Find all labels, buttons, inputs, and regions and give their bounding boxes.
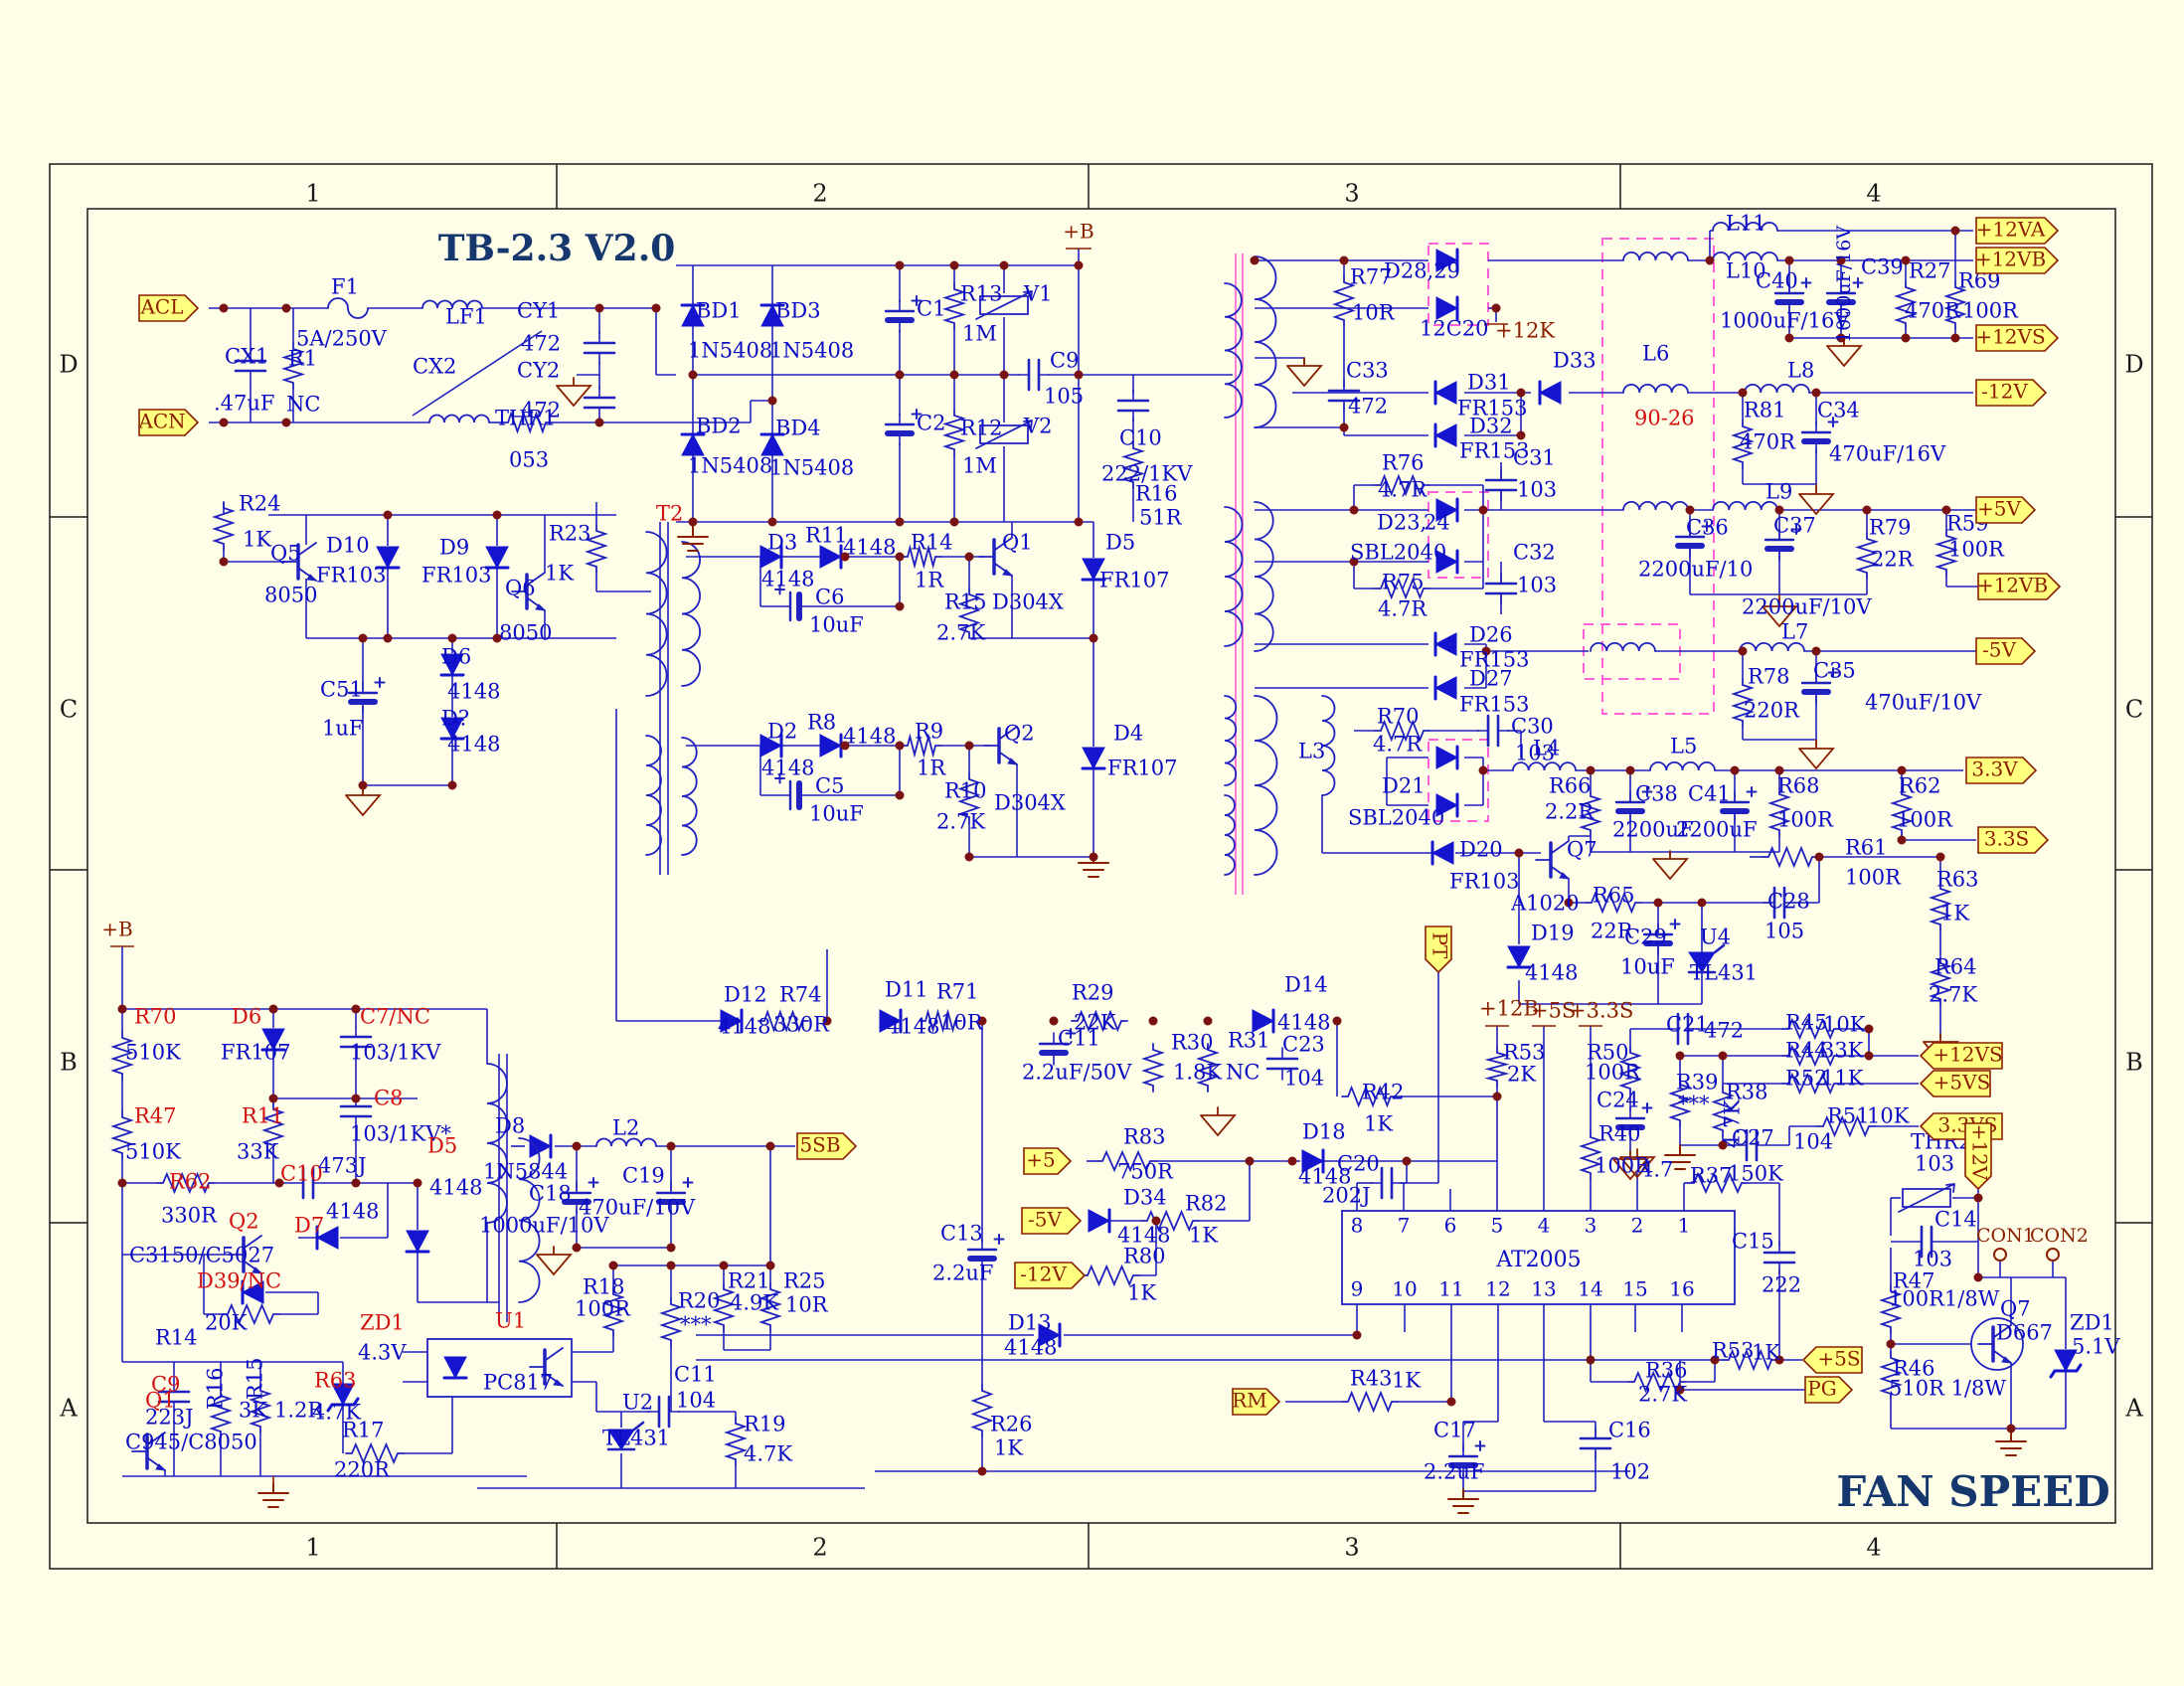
label-R71: R71	[936, 980, 979, 1004]
label-CY2: CY2	[517, 359, 560, 383]
label-R70: R70	[1377, 705, 1420, 729]
grid-col-2: 2	[812, 1534, 827, 1562]
label-+B: +B	[1063, 220, 1093, 244]
label-473J: 473J	[318, 1154, 367, 1178]
label-ZD1: ZD1	[2070, 1311, 2114, 1335]
label-4148: 4148	[447, 680, 500, 704]
label-7: 7	[1398, 1214, 1411, 1238]
label-105: 105	[1764, 920, 1804, 943]
label-472: 472	[521, 332, 561, 356]
label-10: 10	[1392, 1277, 1417, 1301]
label-D23_: D23,	[1377, 511, 1427, 535]
junction-dot	[1090, 634, 1098, 643]
junction-dot	[1686, 506, 1695, 515]
grid-row-C: C	[60, 696, 78, 724]
label-D39_NC: D39/NC	[197, 1269, 281, 1293]
junction-dot	[1447, 1398, 1456, 1407]
label-C2: C2	[917, 412, 945, 435]
grid-col-3: 3	[1344, 180, 1359, 208]
grid-row-A: A	[2124, 1395, 2143, 1423]
label-3: 3	[1585, 1214, 1597, 1238]
label-TL431: TL431	[1690, 961, 1758, 985]
junction-dot	[493, 511, 502, 520]
grid-row-D: D	[59, 351, 78, 379]
junction-dot	[1865, 1025, 1874, 1034]
label-Q6: Q6	[505, 577, 536, 600]
label-C29: C29	[1624, 926, 1667, 949]
label-R75: R75	[1382, 571, 1425, 594]
junction-dot	[1075, 518, 1084, 527]
junction-dot	[1149, 1017, 1158, 1026]
junction-dot	[768, 518, 777, 527]
label-6: 6	[1444, 1214, 1457, 1238]
junction-dot	[965, 742, 974, 751]
label-1M: 1M	[962, 322, 997, 346]
label-1K: 1K	[1189, 1224, 1218, 1248]
label-R53: R53	[1712, 1339, 1755, 1363]
label-R42: R42	[1362, 1081, 1405, 1104]
label-1.8K: 1.8K	[1173, 1061, 1222, 1085]
label-+3.3S: +3.3S	[1569, 999, 1633, 1023]
label-ZD1: ZD1	[360, 1311, 405, 1335]
label-D18: D18	[1302, 1120, 1346, 1144]
junction-dot	[1812, 389, 1821, 398]
label-4: 4	[1538, 1214, 1551, 1238]
label-22R: 22R	[1871, 548, 1915, 572]
label-R51: R51	[1827, 1104, 1870, 1128]
junction-dot	[1587, 1356, 1596, 1365]
junction-dot	[1719, 1052, 1728, 1061]
label-SBL2040: SBL2040	[1350, 541, 1446, 565]
junction-dot	[950, 371, 959, 380]
label-D6: D6	[441, 645, 471, 669]
label-AT2005: AT2005	[1495, 1248, 1581, 1272]
label-51R: 51R	[1139, 506, 1183, 530]
junction-dot	[766, 1142, 775, 1151]
label-SBL2040: SBL2040	[1348, 806, 1444, 830]
label-D34: D34	[1123, 1186, 1167, 1210]
net-tag-+12VB: +12VB	[1977, 574, 2060, 600]
junction-dot	[1204, 1017, 1213, 1026]
label-L5: L5	[1670, 735, 1697, 759]
junction-dot	[1951, 227, 1960, 236]
label-R8: R8	[807, 711, 836, 735]
grid-row-A: A	[59, 1395, 78, 1423]
junction-dot	[1090, 853, 1098, 862]
junction-dot	[1974, 1273, 1983, 1282]
label-1N5408: 1N5408	[688, 454, 772, 478]
label-C1: C1	[917, 297, 945, 321]
label-R15: R15	[944, 590, 987, 614]
label-C11: C11	[674, 1363, 717, 1387]
junction-dot	[609, 1262, 618, 1270]
junction-dot	[1887, 1340, 1896, 1349]
junction-dot	[1000, 261, 1009, 270]
label-D_: D?	[441, 707, 469, 731]
label-R43: R43	[1350, 1367, 1393, 1391]
junction-dot	[1785, 334, 1794, 343]
label-C28: C28	[1767, 890, 1810, 914]
junction-dot	[978, 1467, 987, 1476]
label-R64: R64	[1934, 955, 1977, 979]
junction-dot	[1075, 261, 1084, 270]
net-tag-+12VS: +12VS	[1921, 1043, 2003, 1070]
junction-dot	[1698, 899, 1707, 908]
label-C8: C8	[374, 1087, 403, 1110]
label-C16: C16	[1608, 1419, 1651, 1442]
junction-dot	[1479, 766, 1488, 775]
label-1N5408: 1N5408	[769, 339, 854, 363]
label-R62: R62	[169, 1170, 212, 1194]
label-4148: 4148	[447, 733, 500, 757]
label-BD3: BD3	[775, 299, 821, 323]
label-D13: D13	[1008, 1311, 1052, 1335]
junction-dot	[667, 1142, 676, 1151]
label-4148: 4148	[761, 568, 814, 591]
label-11: 11	[1438, 1277, 1463, 1301]
label-10uF: 10uF	[1620, 955, 1675, 979]
net-tag-+5V: +5V	[1976, 497, 2035, 524]
label-1M: 1M	[962, 454, 997, 478]
label-C51: C51	[320, 678, 363, 702]
label-U4: U4	[1700, 926, 1731, 949]
label-4148: 4148	[326, 1200, 379, 1224]
label-D8: D8	[495, 1114, 525, 1138]
label-D33: D33	[1553, 349, 1596, 373]
label-CX1: CX1	[225, 345, 268, 369]
label-1K: 1K	[1127, 1281, 1156, 1305]
label-100R1_8W: 100R1/8W	[1889, 1287, 2000, 1311]
grid-col-2: 2	[812, 180, 827, 208]
net-tag-text: 5SB	[799, 1133, 840, 1157]
net-tag-text: 3.3S	[1984, 827, 2030, 851]
label-C41: C41	[1688, 782, 1731, 806]
label-D667: D667	[1996, 1321, 2053, 1345]
junction-dot	[950, 261, 959, 270]
label-BD1: BD1	[696, 299, 742, 323]
junction-dot	[1492, 304, 1501, 313]
junction-dot	[1974, 1194, 1983, 1203]
label-330R: 330R	[773, 1013, 830, 1037]
label-C33: C33	[1346, 359, 1389, 383]
junction-dot	[2007, 1425, 2016, 1433]
net-tag-ACL: ACL	[139, 295, 198, 322]
net-tag-text: -12V	[1020, 1263, 1067, 1286]
label-R25: R25	[783, 1269, 826, 1293]
label-2200uF: 2200uF	[1676, 818, 1758, 842]
label-5.1V: 5.1V	[2072, 1335, 2120, 1359]
label-C14: C14	[1934, 1208, 1977, 1232]
label-R63: R63	[1936, 868, 1979, 892]
junction-dot	[573, 1244, 582, 1253]
junction-dot	[1515, 849, 1524, 858]
net-tag-text: +12V	[1968, 1124, 1992, 1181]
label-4148: 4148	[1525, 961, 1578, 985]
label-C27: C27	[1732, 1126, 1774, 1150]
net-tag-ACN: ACN	[137, 410, 198, 436]
label-FR107: FR107	[221, 1041, 290, 1065]
label-R65: R65	[1593, 884, 1635, 908]
grid-col-1: 1	[305, 180, 320, 208]
junction-dot	[896, 261, 905, 270]
label-4148: 4148	[429, 1176, 482, 1200]
label-470R: 470R	[1740, 430, 1796, 454]
junction-dot	[1050, 1017, 1059, 1026]
junction-dot	[1902, 334, 1911, 343]
junction-dot	[896, 602, 905, 611]
label-C18: C18	[529, 1182, 572, 1206]
label-053: 053	[509, 448, 549, 472]
label-U1: U1	[495, 1309, 526, 1333]
net-tag-text: -5V	[1028, 1208, 1062, 1232]
junction-dot	[1353, 1331, 1362, 1340]
label-9: 9	[1351, 1277, 1364, 1301]
label-1K: 1K	[545, 562, 574, 586]
junction-dot	[1493, 1093, 1502, 1101]
label-100R: 100R	[1948, 538, 2005, 562]
label-L11: L11	[1726, 212, 1766, 236]
label-FR103: FR103	[1449, 870, 1519, 894]
label-2.7K: 2.7K	[1929, 983, 1977, 1007]
label-+12K: +12K	[1495, 319, 1555, 343]
label-1R: 1R	[915, 569, 944, 592]
label-R68: R68	[1777, 774, 1820, 798]
label-100R: 100R	[1777, 808, 1834, 832]
label-R74: R74	[779, 983, 822, 1007]
label-BD2: BD2	[696, 415, 742, 438]
label-L3: L3	[1298, 740, 1325, 763]
net-tag--12V: -12V	[1976, 380, 2046, 407]
label-R9: R9	[915, 720, 943, 744]
label-C20: C20	[1337, 1152, 1380, 1176]
net-tag-text: +5S	[1817, 1347, 1860, 1371]
net-tag-text: +5V	[1977, 497, 2021, 521]
label-472: 472	[1704, 1019, 1744, 1043]
label-D6: D6	[232, 1005, 261, 1029]
net-tag-text: +12VA	[1976, 218, 2046, 242]
label-Q1: Q1	[1002, 531, 1033, 555]
label-10R: 10R	[940, 1011, 984, 1035]
label-.47uF: .47uF	[214, 392, 275, 416]
label-C40: C40	[1756, 269, 1798, 293]
label-100R: 100R	[1845, 866, 1902, 890]
label-D10: D10	[326, 534, 370, 558]
net-tag--5V: -5V	[1976, 638, 2035, 665]
label-R27: R27	[1909, 259, 1951, 283]
label-4148: 4148	[1277, 1011, 1330, 1035]
junction-dot	[965, 553, 974, 562]
label-C13: C13	[940, 1222, 983, 1246]
label-11K: 11K	[1821, 1067, 1864, 1091]
label-D20: D20	[1459, 838, 1503, 862]
label-C3150_C5027: C3150/C5027	[129, 1244, 274, 1267]
junction-dot	[359, 634, 368, 643]
label-D304X: D304X	[994, 791, 1066, 815]
label-D4: D4	[1113, 722, 1143, 746]
label-103: 103	[1517, 478, 1557, 502]
net-tag-text: PG	[1807, 1377, 1836, 1401]
label-1N5844: 1N5844	[483, 1160, 568, 1184]
label-+12B: +12B	[1479, 997, 1539, 1021]
label-R1: R1	[288, 347, 317, 371]
label-F1: F1	[331, 275, 359, 299]
label-90-26: 90-26	[1634, 407, 1695, 430]
label-Q5: Q5	[270, 542, 301, 566]
label-C23: C23	[1282, 1033, 1325, 1057]
label-U2: U2	[622, 1391, 653, 1415]
label-10R: 10R	[785, 1293, 829, 1317]
label-1K: 1K	[1364, 1112, 1393, 1136]
label-D27: D27	[1469, 667, 1513, 691]
label-1000uF_16V: 1000uF/16V	[1833, 226, 1855, 343]
label-103: 103	[1517, 574, 1557, 597]
junction-dot	[414, 1179, 422, 1188]
label-R63: R63	[314, 1369, 357, 1393]
junction-dot	[1865, 1052, 1874, 1061]
net-tag-text: +5	[1026, 1148, 1055, 1172]
grid-row-C: C	[2125, 696, 2143, 724]
label-14: 14	[1578, 1277, 1602, 1301]
label-R24: R24	[239, 492, 281, 516]
label-1000uF_16V: 1000uF/16V	[1720, 309, 1850, 333]
junction-dot	[1403, 1157, 1412, 1166]
net-tag-text: +12VS	[1975, 325, 2045, 349]
label-LF1: LF1	[445, 305, 487, 329]
label-150K: 150K	[1728, 1162, 1783, 1186]
label-4148: 4148	[843, 725, 896, 749]
label-10uF: 10uF	[809, 802, 864, 826]
junction-dot	[1812, 647, 1821, 656]
label-R39: R39	[1676, 1071, 1719, 1095]
label-R81: R81	[1744, 399, 1786, 422]
label-R53: R53	[1503, 1041, 1546, 1065]
grid-col-1: 1	[305, 1534, 320, 1562]
label-V1: V1	[1023, 282, 1053, 306]
label-1uF: 1uF	[322, 717, 363, 741]
label-L9: L9	[1765, 480, 1792, 504]
net-tag-+12VS: +12VS	[1975, 325, 2058, 352]
label-D5: D5	[427, 1134, 457, 1158]
junction-dot	[118, 1005, 127, 1014]
net-tag-text: +5VS	[1933, 1071, 1991, 1095]
label-R29: R29	[1072, 981, 1114, 1005]
label-4.7R: 4.7R	[1373, 733, 1423, 757]
label-C36: C36	[1686, 516, 1729, 540]
junction-dot	[667, 1262, 676, 1270]
label-R14: R14	[155, 1326, 198, 1350]
label-D7: D7	[294, 1214, 324, 1238]
label-C11: C11	[1058, 1027, 1100, 1051]
label-510K: 510K	[125, 1041, 181, 1065]
junction-dot	[269, 1005, 278, 1014]
label-16: 16	[1669, 1277, 1694, 1301]
junction-dot	[768, 397, 777, 406]
label-FR103: FR103	[316, 564, 386, 588]
label-R11: R11	[242, 1104, 284, 1128]
label-4.7R: 4.7R	[1378, 597, 1428, 621]
label-R78: R78	[1748, 665, 1790, 689]
label-220R: 220R	[334, 1458, 391, 1482]
net-tag--12V: -12V	[1015, 1263, 1085, 1289]
label-510K: 510K	[125, 1140, 181, 1164]
label-100R: 100R	[1897, 808, 1953, 832]
label-C10: C10	[280, 1162, 323, 1186]
grid-col-4: 4	[1866, 180, 1881, 208]
net-tag-+12VA: +12VA	[1976, 218, 2058, 245]
junction-dot	[352, 1179, 361, 1188]
label-R23: R23	[549, 522, 591, 546]
junction-dot	[220, 558, 229, 567]
junction-dot	[1626, 766, 1635, 775]
net-tag-+5S: +5S	[1803, 1347, 1862, 1374]
label-13: 13	[1531, 1277, 1556, 1301]
junction-dot	[384, 511, 393, 520]
label-D31: D31	[1467, 371, 1511, 395]
label-12C20: 12C20	[1420, 317, 1489, 341]
junction-dot	[595, 304, 604, 313]
label-2200uF_10: 2200uF/10	[1638, 558, 1753, 582]
label-R10: R10	[944, 779, 987, 803]
label-NC: NC	[286, 393, 320, 417]
label-C38: C38	[1635, 782, 1678, 806]
label-105: 105	[1044, 385, 1084, 409]
label-FR107: FR107	[1099, 569, 1169, 592]
label-Q7: Q7	[2000, 1297, 2031, 1321]
label-2: 2	[1631, 1214, 1644, 1238]
label-1N5408: 1N5408	[688, 339, 772, 363]
label-D21: D21	[1382, 774, 1426, 798]
junction-dot	[1479, 506, 1488, 515]
label-4148: 4148	[718, 1015, 770, 1039]
junction-dot	[689, 518, 698, 527]
label-R79: R79	[1869, 516, 1912, 540]
label-CX2: CX2	[413, 355, 456, 379]
net-tag-text: RM	[1232, 1389, 1267, 1413]
junction-dot	[1654, 899, 1663, 908]
label-___: ***	[1678, 1093, 1710, 1116]
label-Q2: Q2	[1004, 722, 1035, 746]
junction-dot	[689, 371, 698, 380]
label-R16: R16	[1135, 482, 1178, 506]
label-CON1: CON1	[1976, 1225, 2035, 1247]
junction-dot	[1785, 256, 1794, 265]
label-D19: D19	[1531, 922, 1575, 945]
label-100R: 100R	[1962, 299, 2019, 323]
label-5: 5	[1491, 1214, 1504, 1238]
label-FR153: FR153	[1459, 693, 1529, 717]
label-1K: 1K	[1940, 902, 1969, 926]
junction-dot	[448, 634, 457, 643]
label-R47: R47	[134, 1104, 177, 1128]
label-1N5408: 1N5408	[769, 456, 854, 480]
junction-dot	[950, 518, 959, 527]
label-R21: R21	[728, 1269, 770, 1293]
junction-dot	[1251, 256, 1260, 265]
label-C35: C35	[1813, 659, 1856, 683]
label-R61: R61	[1845, 836, 1888, 860]
junction-dot	[1863, 506, 1872, 515]
label-100R: 100R	[1585, 1061, 1641, 1085]
junction-dot	[1340, 423, 1349, 432]
junction-dot	[1739, 647, 1748, 656]
label-2.7K: 2.7K	[936, 810, 985, 834]
label-24: 24	[1424, 511, 1450, 535]
junction-dot	[282, 304, 291, 313]
label-10K: 10K	[1867, 1104, 1910, 1128]
junction-dot	[1288, 1157, 1297, 1166]
grid-col-4: 4	[1866, 1534, 1881, 1562]
label-PC817: PC817	[483, 1371, 553, 1395]
